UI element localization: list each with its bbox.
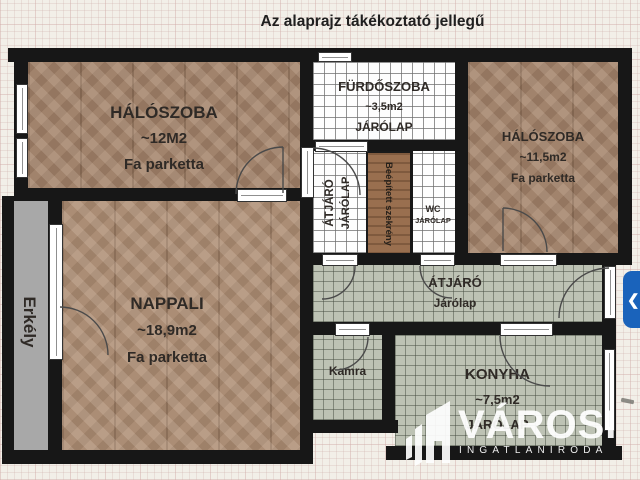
building-icon (398, 393, 458, 473)
wall (382, 335, 395, 433)
wall (455, 48, 468, 265)
door-opening (420, 254, 455, 266)
page-title: Az alaprajz tákékoztató jellegű (105, 13, 640, 31)
closet-label: Beépített szekrény (376, 154, 400, 254)
room-label-passage: ÁTJÁRÓ JÁRÓLAP (322, 150, 356, 256)
room-floor-type: JÁRÓLAP (313, 117, 455, 137)
room-label-hallway: ÁTJÁRÓ Járólap (395, 273, 515, 313)
door-opening (301, 147, 314, 198)
door-opening (500, 254, 557, 266)
chevron-left-icon: ❮ (627, 291, 640, 309)
room-label-bedroom-right: HÁLÓSZOBA ~11,5m2 Fa parketta (468, 126, 618, 189)
room-area: ~3,5m2 (313, 97, 455, 117)
room-area: ~12M2 (28, 126, 300, 152)
watermark-subtitle: INGATLANIRODA (459, 445, 608, 456)
room-area: ~18,9m2 (62, 317, 272, 344)
watermark-brand: VÁROSI (458, 404, 617, 446)
room-label-pantry: Kamra (313, 364, 382, 378)
room-label-living: NAPPALI ~18,9m2 Fa parketta (62, 290, 272, 371)
room-name: FÜRDŐSZOBA (313, 77, 455, 97)
floor-plan-image: Az alaprajz tákékoztató jellegű (0, 0, 640, 480)
room-floor-type: Járólap (395, 293, 515, 313)
door-opening (500, 323, 553, 336)
room-name: HÁLÓSZOBA (28, 100, 300, 126)
room-label-bedroom-left: HÁLÓSZOBA ~12M2 Fa parketta (28, 100, 300, 178)
wall (313, 253, 632, 265)
room-name: ÁTJÁRÓ (395, 273, 515, 293)
window (318, 52, 352, 62)
room-floor-type: JÁRÓLAP (338, 150, 354, 256)
room-area: ~11,5m2 (468, 147, 618, 168)
door-opening (335, 323, 370, 336)
wall (618, 48, 632, 265)
wall (300, 48, 313, 464)
room-name: NAPPALI (62, 290, 272, 317)
entrance-door-opening (604, 266, 616, 319)
window (16, 84, 28, 134)
room-name: WC (411, 203, 455, 215)
room-floor-type: Fa parketta (468, 168, 618, 189)
room-label-wc: WC JÁRÓLAP (411, 203, 455, 227)
room-name: KONYHA (425, 362, 570, 387)
room-name: HÁLÓSZOBA (468, 126, 618, 147)
room-wc-floor (411, 151, 455, 253)
room-floor-type: Fa parketta (28, 152, 300, 178)
window (16, 138, 28, 178)
room-name: ÁTJÁRÓ (322, 150, 338, 256)
balcony-door-window (49, 224, 63, 360)
room-label-bathroom: FÜRDŐSZOBA ~3,5m2 JÁRÓLAP (313, 77, 455, 137)
door-opening (237, 189, 287, 202)
room-floor-type: JÁRÓLAP (411, 215, 455, 227)
wall (410, 151, 413, 253)
cursor-artifact (621, 398, 635, 405)
carousel-prev-button[interactable]: ❮ (623, 271, 640, 328)
room-label-balcony: Erkély (9, 281, 49, 363)
room-floor-type: Fa parketta (62, 344, 272, 371)
